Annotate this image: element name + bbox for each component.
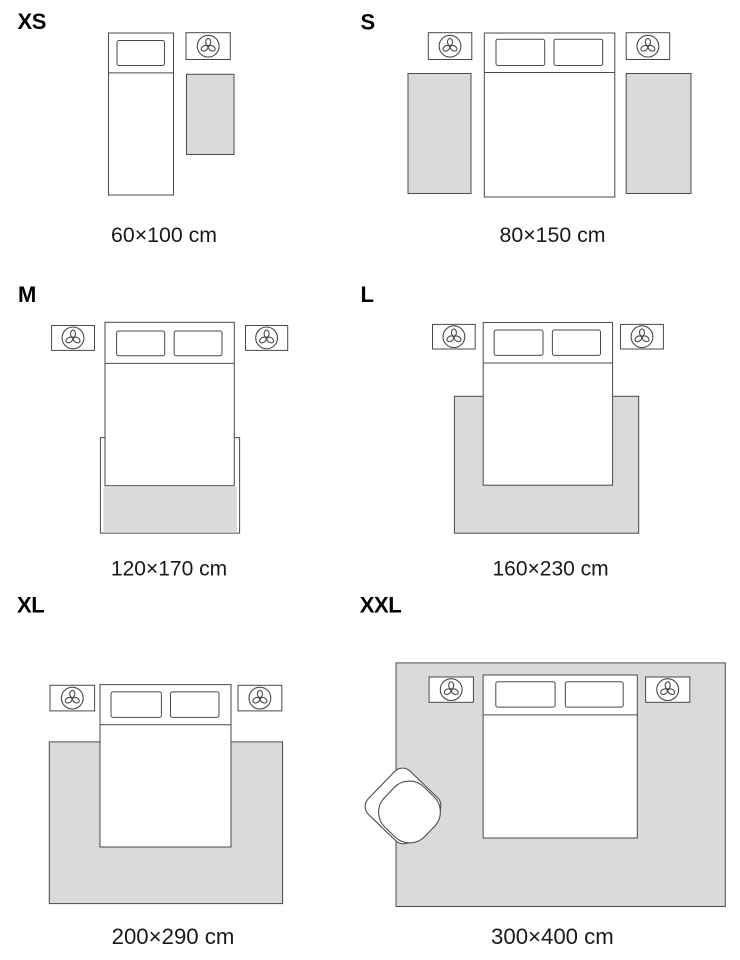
svg-text:XXL: XXL (360, 592, 402, 617)
svg-text:L: L (361, 282, 374, 307)
svg-text:300×400 cm: 300×400 cm (491, 924, 614, 949)
svg-text:80×150 cm: 80×150 cm (500, 223, 606, 247)
svg-text:M: M (18, 282, 36, 307)
svg-text:60×100 cm: 60×100 cm (111, 223, 217, 247)
svg-text:S: S (361, 10, 375, 35)
svg-text:XL: XL (17, 592, 44, 617)
svg-text:XS: XS (18, 9, 47, 34)
svg-text:120×170 cm: 120×170 cm (111, 558, 227, 581)
svg-text:200×290 cm: 200×290 cm (112, 924, 235, 949)
svg-text:160×230 cm: 160×230 cm (493, 558, 609, 581)
